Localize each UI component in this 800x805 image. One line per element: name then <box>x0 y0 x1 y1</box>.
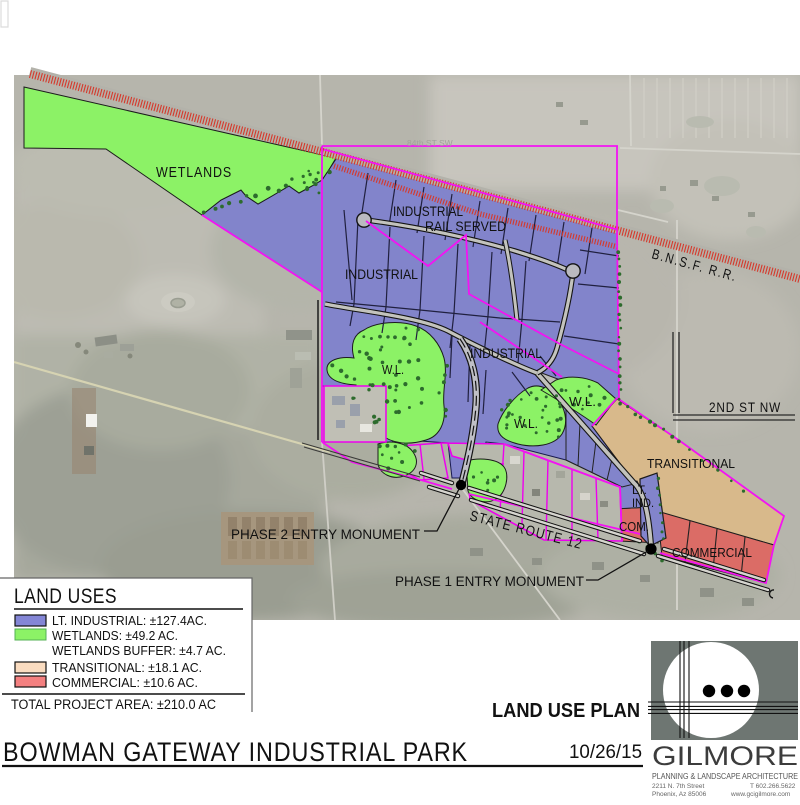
svg-text:PLANNING & LANDSCAPE ARCHITECT: PLANNING & LANDSCAPE ARCHITECTURE <box>652 772 798 781</box>
svg-text:GILMORE: GILMORE <box>652 741 798 771</box>
svg-text:T 602.266.5622: T 602.266.5622 <box>750 783 796 790</box>
svg-text:COM.: COM. <box>619 520 649 534</box>
svg-text:W.L.: W.L. <box>514 416 538 431</box>
svg-text:COMMERCIAL: ±10.6 AC.: COMMERCIAL: ±10.6 AC. <box>52 676 198 690</box>
svg-text:TOTAL PROJECT AREA: ±210.0 AC: TOTAL PROJECT AREA: ±210.0 AC <box>11 697 216 712</box>
svg-text:WETLANDS: ±49.2 AC.: WETLANDS: ±49.2 AC. <box>52 629 178 643</box>
svg-text:WETLANDS BUFFER: ±4.7 AC.: WETLANDS BUFFER: ±4.7 AC. <box>52 644 226 658</box>
svg-text:TRANSITIONAL: TRANSITIONAL <box>647 456 735 471</box>
svg-text:INDUSTRIAL: INDUSTRIAL <box>470 345 542 361</box>
svg-text:LAND USE PLAN: LAND USE PLAN <box>492 700 640 722</box>
svg-text:W.L.: W.L. <box>569 394 596 409</box>
svg-text:PHASE 1 ENTRY MONUMENT: PHASE 1 ENTRY MONUMENT <box>395 574 584 589</box>
svg-text:W.L.: W.L. <box>382 362 404 377</box>
svg-text:www.gcigilmore.com: www.gcigilmore.com <box>730 791 790 798</box>
svg-text:10/26/15: 10/26/15 <box>569 741 642 763</box>
svg-text:LT. INDUSTRIAL: ±127.4AC.: LT. INDUSTRIAL: ±127.4AC. <box>52 614 207 628</box>
svg-text:2211 N. 7th Street: 2211 N. 7th Street <box>652 783 704 790</box>
svg-text:WETLANDS: WETLANDS <box>156 164 232 181</box>
svg-text:84th ST SW: 84th ST SW <box>407 138 453 148</box>
svg-text:IND.: IND. <box>632 496 654 510</box>
svg-text:LAND USES: LAND USES <box>14 585 117 608</box>
svg-text:INDUSTRIAL: INDUSTRIAL <box>393 203 463 219</box>
svg-text:BOWMAN GATEWAY INDUSTRIAL PARK: BOWMAN GATEWAY INDUSTRIAL PARK <box>3 737 468 767</box>
svg-text:INDUSTRIAL: INDUSTRIAL <box>345 266 418 282</box>
svg-text:2ND ST NW: 2ND ST NW <box>709 399 781 415</box>
svg-text:COMMERCIAL: COMMERCIAL <box>672 545 752 560</box>
svg-text:TRANSITIONAL: ±18.1 AC.: TRANSITIONAL: ±18.1 AC. <box>52 661 202 675</box>
svg-text:PHASE 2 ENTRY MONUMENT: PHASE 2 ENTRY MONUMENT <box>231 527 420 542</box>
svg-text:RAIL SERVED: RAIL SERVED <box>425 218 506 234</box>
svg-text:LT.: LT. <box>632 483 647 497</box>
svg-text:Phoenix, Az 85006: Phoenix, Az 85006 <box>652 791 707 798</box>
